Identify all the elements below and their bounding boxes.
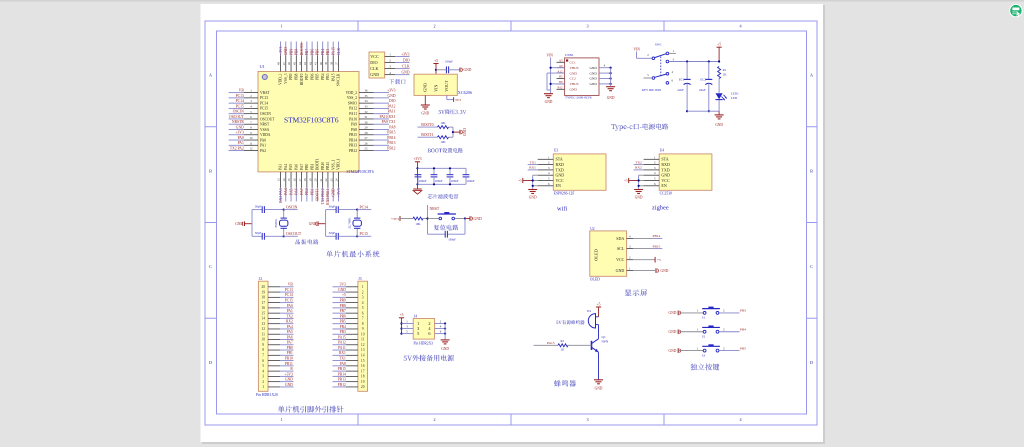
svg-text:7: 7 [262,354,264,358]
svg-text:NRSTR: NRSTR [232,120,244,124]
svg-text:TXD: TXD [556,167,564,172]
svg-text:PC13: PC13 [260,96,268,100]
svg-text:PB14: PB14 [387,136,395,140]
svg-text:PA11: PA11 [349,112,357,116]
svg-text:PB12: PB12 [338,383,346,387]
svg-text:VCC: VCC [616,257,625,262]
svg-text:GND: GND [474,217,482,221]
svg-text:PB8: PB8 [295,73,299,79]
svg-text:+3V3: +3V3 [279,47,283,56]
svg-text:DIO: DIO [389,99,396,103]
svg-text:+3V3: +3V3 [285,372,293,376]
svg-text:36: 36 [365,89,369,93]
svg-text:RX3 PB11: RX3 PB11 [326,188,330,205]
svg-text:PB3: PB3 [326,49,330,56]
svg-text:EN: EN [556,183,561,188]
svg-text:48: 48 [277,62,281,66]
svg-text:3: 3 [586,24,588,29]
svg-text:VSS_1: VSS_1 [331,160,335,170]
svg-text:PC14: PC14 [285,293,293,297]
svg-text:PA8: PA8 [351,128,357,132]
svg-text:PA4: PA4 [284,188,288,195]
svg-text:28: 28 [365,131,369,135]
svg-text:STM32F103C8T6: STM32F103C8T6 [347,170,374,174]
svg-text:PA15: PA15 [338,335,346,339]
svg-text:18: 18 [261,296,265,300]
svg-text:U1: U1 [260,64,265,69]
svg-text:RX1: RX1 [339,351,346,355]
svg-text:30pF: 30pF [255,231,262,235]
svg-text:VBUS: VBUS [570,82,579,86]
svg-text:CC2530: CC2530 [660,192,672,196]
svg-text:PB0: PB0 [305,188,309,195]
svg-text:1: 1 [262,385,264,389]
svg-text:30pF: 30pF [329,231,336,235]
svg-text:PA12: PA12 [387,104,395,108]
svg-text:10K: 10K [415,222,421,226]
svg-text:VSS_2: VSS_2 [347,96,357,100]
svg-text:13: 13 [277,178,281,182]
svg-text:4: 4 [362,301,364,305]
svg-text:GND: GND [285,383,293,387]
svg-text:32: 32 [365,110,369,114]
svg-text:PB5: PB5 [340,320,346,324]
svg-text:PA6: PA6 [295,164,299,170]
svg-text:VIN: VIN [433,84,438,91]
svg-text:27: 27 [365,136,369,140]
svg-text:PA1: PA1 [238,141,244,145]
svg-text:GND: GND [545,100,553,104]
svg-text:GND: GND [715,123,723,127]
svg-text:GND: GND [635,196,643,200]
svg-text:11: 11 [261,332,265,336]
svg-text:PB0: PB0 [287,346,293,350]
svg-text:22uF: 22uF [677,88,684,92]
svg-text:34: 34 [365,99,369,103]
svg-text:VDD_2: VDD_2 [346,91,358,95]
svg-text:VDDA: VDDA [260,133,271,137]
svg-text:A5: A5 [559,59,563,63]
svg-text:J4: J4 [414,315,417,319]
svg-text:PB9: PB9 [340,299,346,303]
svg-text:2: 2 [362,290,364,294]
svg-text:29: 29 [365,126,369,130]
svg-text:11: 11 [250,141,253,145]
svg-text:RXD: RXD [661,162,670,167]
svg-text:PB7: PB7 [340,309,346,313]
svg-text:GND: GND [589,77,597,81]
svg-text:EN: EN [661,183,666,188]
svg-text:100nF: 100nF [467,179,475,183]
svg-text:OSCOUT: OSCOUT [260,117,275,121]
svg-text:31: 31 [365,115,369,119]
svg-text:PC15: PC15 [236,104,244,108]
svg-text:GND: GND [669,349,677,353]
svg-text:STM32F103C8T6: STM32F103C8T6 [284,115,339,124]
svg-text:CC1: CC1 [570,61,577,65]
svg-text:100nF: 100nF [448,238,456,242]
svg-text:+3V3: +3V3 [235,131,244,135]
svg-text:TX2: TX2 [635,160,642,164]
svg-text:GND: GND [332,188,336,196]
svg-text:SWCLK: SWCLK [337,73,341,86]
svg-text:8: 8 [262,348,264,352]
svg-text:PA11: PA11 [388,110,396,114]
svg-text:PB3: PB3 [326,73,330,79]
svg-text:GND: GND [463,128,467,136]
svg-text:SDA: SDA [616,236,624,241]
svg-text:PA7: PA7 [300,164,304,170]
svg-text:12: 12 [361,343,365,347]
svg-text:PA0: PA0 [260,138,266,142]
svg-text:1: 1 [362,285,364,289]
svg-text:13: 13 [361,348,365,352]
svg-text:22uF: 22uF [699,88,706,92]
svg-text:14: 14 [261,317,265,321]
svg-text:TX2: TX2 [286,314,293,318]
svg-text:PB6: PB6 [340,314,346,318]
svg-text:U4: U4 [660,149,665,153]
svg-text:41: 41 [314,62,318,66]
svg-text:6: 6 [362,311,364,315]
svg-text:PB3: PB3 [340,330,346,334]
svg-text:GND: GND [589,82,597,86]
svg-text:PA8: PA8 [389,125,395,129]
svg-text:PC15: PC15 [285,299,293,303]
svg-text:2: 2 [433,417,435,422]
svg-text:PB4: PB4 [740,328,746,332]
svg-text:LED: LED [731,96,738,100]
svg-text:42: 42 [308,62,312,66]
svg-text:VIN: VIN [547,53,554,57]
svg-text:D: D [810,360,813,365]
svg-text:43: 43 [303,62,307,66]
svg-text:15: 15 [261,311,265,315]
svg-text:18: 18 [303,178,307,182]
svg-text:17: 17 [261,301,265,305]
svg-text:16: 16 [293,178,297,182]
svg-text:3: 3 [262,375,264,379]
svg-text:PA0: PA0 [287,304,293,308]
svg-text:GND: GND [570,88,578,92]
svg-text:PA7: PA7 [287,341,293,345]
svg-text:10K: 10K [440,121,446,125]
svg-text:8MHz: 8MHz [274,218,278,227]
svg-text:17: 17 [361,369,365,373]
svg-text:PB9: PB9 [289,49,293,56]
svg-text:PB5: PB5 [740,346,746,350]
svg-text:VB: VB [288,283,294,287]
svg-text:PB14: PB14 [349,138,357,142]
svg-text:VOUT: VOUT [444,80,449,92]
svg-text:GND: GND [402,71,410,75]
svg-text:GND: GND [589,71,597,75]
svg-text:PB15: PB15 [653,244,661,248]
svg-text:PB0: PB0 [305,164,309,170]
svg-text:RXD: RXD [556,162,565,167]
svg-text:PC13: PC13 [285,288,293,292]
svg-text:100nF: 100nF [451,179,459,183]
svg-text:PB8: PB8 [340,304,346,308]
svg-text:100nF: 100nF [419,179,427,183]
svg-text:BOOT0: BOOT0 [300,43,304,55]
svg-text:VIN: VIN [634,47,641,51]
svg-text:PC14: PC14 [236,99,244,103]
svg-text:VDD_1: VDD_1 [337,158,341,170]
svg-text:38: 38 [329,62,333,66]
svg-text:33: 33 [365,105,369,109]
svg-text:PC15: PC15 [260,107,268,111]
svg-text:PB11: PB11 [285,362,293,366]
svg-text:GND: GND [570,71,578,75]
svg-text:S1: S1 [702,316,706,320]
svg-text:30pF: 30pF [329,204,336,208]
svg-text:ESP8266-12F: ESP8266-12F [554,192,575,196]
svg-text:U2: U2 [590,227,595,231]
svg-text:30: 30 [365,120,369,124]
svg-text:PB4: PB4 [321,49,325,56]
svg-text:45: 45 [293,62,297,66]
svg-text:39: 39 [324,62,328,66]
svg-text:B5: B5 [559,75,563,79]
svg-text:CLK: CLK [337,47,341,55]
svg-text:GND: GND [338,288,346,292]
svg-text:100nF: 100nF [445,60,453,64]
svg-text:PB13: PB13 [387,141,395,145]
svg-text:USB1: USB1 [565,53,574,57]
svg-text:EC2: EC2 [700,78,706,82]
svg-text:+5: +5 [434,59,438,63]
svg-text:TX2 PA2: TX2 PA2 [230,146,244,150]
svg-text:TYPEC-2000-8CP6: TYPEC-2000-8CP6 [565,95,592,99]
svg-text:40: 40 [319,62,323,66]
svg-text:GND: GND [669,311,677,315]
svg-text:B: B [810,168,813,173]
svg-text:PC14: PC14 [360,206,369,210]
svg-text:GND: GND [236,125,244,129]
svg-text:VCC: VCC [556,178,565,183]
svg-text:GND: GND [589,66,597,70]
svg-text:NRST: NRST [430,207,440,211]
svg-text:16: 16 [361,364,365,368]
svg-text:44: 44 [298,62,302,66]
svg-text:PB3: PB3 [740,309,746,313]
svg-text:+3V3: +3V3 [391,217,399,221]
svg-text:VBUS: VBUS [570,66,579,70]
svg-text:+5: +5 [518,179,522,183]
svg-text:TX3 PB10: TX3 PB10 [321,188,325,204]
svg-text:RX2: RX2 [286,320,293,324]
svg-text:VB: VB [239,89,245,93]
svg-text:CLK: CLK [370,66,378,71]
svg-text:+5: +5 [624,179,628,183]
svg-text:PA9: PA9 [351,123,357,127]
svg-text:D1: D1 [587,309,591,313]
svg-text:5: 5 [262,364,264,368]
svg-text:1: 1 [280,417,282,422]
svg-text:PB7: PB7 [305,49,309,56]
svg-text:10: 10 [250,136,254,140]
svg-text:EC1: EC1 [679,78,685,82]
svg-text:SCL: SCL [617,246,625,251]
svg-text:OSCOUT: OSCOUT [229,115,244,119]
svg-text:11: 11 [361,338,365,342]
svg-text:STA: STA [661,157,668,162]
svg-text:PB10: PB10 [321,162,325,170]
svg-text:PA10: PA10 [349,117,357,121]
svg-text:5: 5 [362,306,364,310]
svg-text:PA7: PA7 [300,188,304,195]
svg-text:21: 21 [319,178,323,182]
svg-text:PA4: PA4 [287,325,293,329]
svg-text:PB14: PB14 [338,372,346,376]
svg-text:PA9 TX1: PA9 TX1 [382,120,396,124]
svg-text:15: 15 [287,178,291,182]
svg-text:GND: GND [388,94,396,98]
svg-text:2: 2 [433,24,435,29]
svg-text:PB4: PB4 [340,325,346,329]
svg-text:C: C [209,264,212,269]
svg-text:3V3: 3V3 [340,283,346,287]
svg-text:8: 8 [362,322,364,326]
svg-text:PB9: PB9 [289,73,293,79]
svg-text:BOOT1: BOOT1 [421,133,433,137]
svg-text:VDD_3: VDD_3 [279,73,283,85]
svg-text:PB1: PB1 [310,188,314,195]
svg-text:PA1: PA1 [260,144,266,148]
svg-text:PC14: PC14 [260,101,268,105]
svg-text:GND: GND [595,387,603,391]
svg-text:PA10 RX1: PA10 RX1 [380,115,396,119]
svg-text:30pF: 30pF [255,204,262,208]
svg-text:PB5: PB5 [316,49,320,56]
svg-text:14: 14 [361,354,365,358]
svg-text:CLK: CLK [402,65,410,69]
svg-text:+3V3: +3V3 [413,157,421,161]
svg-text:B: B [209,168,212,173]
svg-text:DIO: DIO [370,60,377,65]
svg-text:PB14: PB14 [653,234,661,238]
svg-text:PA3: PA3 [279,164,283,170]
svg-text:16: 16 [261,306,265,310]
svg-text:PA6: PA6 [287,335,293,339]
svg-text:TX1: TX1 [339,356,346,360]
svg-text:OSCIN: OSCIN [260,112,271,116]
svg-text:SW1: SW1 [655,43,662,47]
svg-text:35: 35 [365,94,369,98]
svg-text:+5: +5 [400,313,404,317]
svg-text:PA15: PA15 [547,341,555,345]
svg-text:VCC: VCC [661,178,670,183]
svg-text:18: 18 [361,375,365,379]
svg-text:CC2: CC2 [570,77,577,81]
svg-text:SWIO: SWIO [348,101,358,105]
svg-text:100nF: 100nF [435,179,443,183]
svg-text:PC13: PC13 [236,94,244,98]
svg-text:VCC: VCC [370,54,379,59]
svg-text:14: 14 [282,178,286,182]
svg-text:10: 10 [261,338,265,342]
svg-text:PA5: PA5 [289,188,293,195]
svg-text:J2: J2 [259,277,262,281]
svg-text:19: 19 [308,178,312,182]
svg-text:GND: GND [616,268,625,273]
svg-text:BOOT1: BOOT1 [316,188,320,200]
svg-text:20: 20 [361,385,365,389]
svg-text:VBAT: VBAT [260,91,270,95]
svg-text:GND: GND [421,112,429,116]
svg-text:B12: B12 [557,86,563,90]
svg-text:13: 13 [261,322,265,326]
svg-text:NRST: NRST [260,123,270,127]
svg-text:wifi: wifi [557,206,568,213]
svg-text:2: 2 [262,380,264,384]
svg-text:1: 1 [280,24,282,29]
svg-text:9: 9 [262,343,264,347]
svg-text:24: 24 [335,178,339,182]
svg-text:OLED: OLED [594,249,599,261]
svg-text:OSCIN: OSCIN [233,110,244,114]
svg-text:PB1: PB1 [287,351,293,355]
svg-text:PA15: PA15 [331,73,335,81]
svg-text:PC15: PC15 [360,232,369,236]
svg-text:PB15: PB15 [338,367,346,371]
svg-text:+5: +5 [717,43,721,47]
svg-text:GND: GND [607,96,615,100]
svg-text:PB10: PB10 [285,356,293,360]
svg-text:PA2: PA2 [260,149,266,153]
svg-text:KFT DIP-8X8: KFT DIP-8X8 [642,88,661,92]
svg-text:1K: 1K [723,73,728,77]
svg-text:PA5: PA5 [289,164,293,170]
svg-text:OSCOUT: OSCOUT [286,232,302,236]
svg-text:12: 12 [261,327,265,331]
svg-text:PA12: PA12 [349,107,357,111]
svg-text:DIO: DIO [403,58,410,62]
svg-text:STA: STA [556,157,563,162]
svg-text:+3V3: +3V3 [401,52,410,56]
svg-text:PA11: PA11 [338,346,346,350]
svg-text:PB6: PB6 [310,73,314,79]
svg-text:+5: +5 [597,302,601,306]
svg-text:PB13: PB13 [338,378,346,382]
svg-text:XC6206: XC6206 [458,90,472,95]
svg-text:9: 9 [362,327,364,331]
svg-text:20: 20 [261,285,265,289]
svg-text:GND: GND [464,68,472,72]
svg-text:PA4: PA4 [284,164,288,170]
svg-text:S2: S2 [702,335,706,339]
svg-text:4: 4 [262,369,264,373]
svg-text:10: 10 [361,332,365,336]
svg-text:+5: +5 [342,293,346,297]
svg-text:19: 19 [361,380,365,384]
svg-text:23: 23 [329,178,333,182]
svg-text:PA0: PA0 [238,136,244,140]
svg-text:+5: +5 [657,258,661,262]
svg-text:PB12: PB12 [387,146,395,150]
svg-text:7: 7 [362,317,364,321]
svg-text:PB13: PB13 [349,144,357,148]
svg-text:PB11: PB11 [326,162,330,170]
svg-text:VSS_3: VSS_3 [284,73,288,83]
svg-text:PB8: PB8 [295,49,299,56]
svg-text:22: 22 [324,178,328,182]
svg-text:R2: R2 [561,339,565,343]
svg-text:A: A [810,73,813,78]
svg-text:VSSA: VSSA [260,128,270,132]
svg-text:PA8: PA8 [340,362,346,366]
